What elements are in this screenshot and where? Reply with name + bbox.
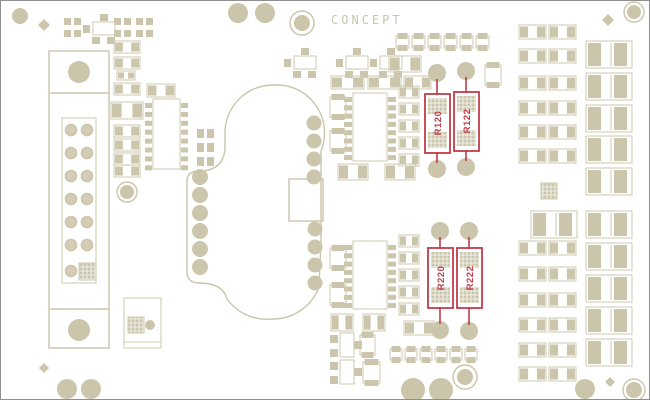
pad <box>520 243 528 254</box>
pad <box>614 43 627 66</box>
pad <box>614 341 627 364</box>
pad <box>131 43 139 52</box>
pcb-layout-canvas: CONCEPT R120 R122 R220 <box>1 1 649 399</box>
pad <box>567 320 575 331</box>
fiducial-pad <box>294 15 310 31</box>
pad <box>332 148 345 154</box>
pad <box>400 139 406 148</box>
pad <box>567 103 575 114</box>
pad <box>588 107 601 130</box>
pad <box>550 345 558 356</box>
ic-pin <box>388 287 396 292</box>
pad <box>146 18 153 25</box>
mounting-pad <box>12 8 28 24</box>
pad <box>207 143 214 152</box>
component-ref-label: R120 <box>433 111 444 136</box>
pad <box>588 138 601 161</box>
pad <box>336 59 343 67</box>
module-outline <box>187 85 325 319</box>
pad <box>412 105 418 114</box>
pad <box>550 27 558 38</box>
pad <box>567 78 575 89</box>
ic-pin <box>145 139 152 144</box>
pad <box>308 71 316 78</box>
ic-pin <box>344 114 352 119</box>
pad <box>550 151 558 162</box>
ic-pin <box>181 103 188 108</box>
pad <box>588 43 601 66</box>
pad <box>478 45 488 51</box>
connector-pin <box>66 266 77 277</box>
pad <box>452 346 461 352</box>
ic-pin <box>388 155 396 160</box>
pad <box>115 141 123 150</box>
corner-diamond <box>38 19 50 31</box>
pad <box>588 277 601 300</box>
pad <box>550 51 558 62</box>
pad <box>614 170 627 193</box>
ic-pin <box>344 105 352 110</box>
pad <box>537 78 545 89</box>
pad <box>124 30 131 37</box>
connector-pin <box>66 240 77 251</box>
pad <box>400 271 406 280</box>
pad <box>446 33 456 39</box>
mounting-pad <box>255 3 275 23</box>
pad <box>386 166 395 179</box>
connector-pin <box>82 217 93 228</box>
pad <box>301 48 309 55</box>
pad <box>166 86 174 96</box>
smd-pad <box>431 252 450 268</box>
pad <box>588 245 601 268</box>
pad <box>550 295 558 306</box>
ic-pin <box>344 139 352 144</box>
ic-pin <box>181 165 188 170</box>
pad <box>132 104 142 118</box>
pad <box>614 309 627 332</box>
pad <box>430 33 440 39</box>
module-pad <box>307 134 322 149</box>
pad <box>390 58 400 71</box>
pad <box>379 71 387 78</box>
module-pad <box>308 222 323 237</box>
pad <box>414 33 424 39</box>
pad <box>537 103 545 114</box>
pad <box>136 30 143 37</box>
sot23-body <box>294 56 316 69</box>
ic-pin <box>145 103 152 108</box>
pad <box>128 73 134 79</box>
ic-pin <box>344 270 352 275</box>
fiducial-pad <box>627 5 641 19</box>
pad <box>64 18 71 25</box>
pad <box>550 369 558 380</box>
pad <box>412 288 418 297</box>
pad <box>353 48 361 55</box>
ic-pin <box>344 253 352 258</box>
pad <box>478 33 488 39</box>
pad <box>567 151 575 162</box>
ic-pin <box>145 156 152 161</box>
pad <box>567 243 575 254</box>
pad <box>74 30 81 37</box>
pad <box>412 271 418 280</box>
component-ref-label: R220 <box>436 266 447 291</box>
module-pad <box>307 152 322 167</box>
pad <box>537 51 545 62</box>
sot23-body <box>340 333 354 357</box>
pad <box>422 357 431 363</box>
pad <box>345 316 352 330</box>
pad <box>369 78 379 88</box>
ic-pin <box>388 97 396 102</box>
pad <box>400 105 406 114</box>
pad <box>520 103 528 114</box>
mounting-pad <box>429 378 453 399</box>
module-pad <box>192 241 208 257</box>
pad <box>520 269 528 280</box>
connector-pin <box>66 148 77 159</box>
pad <box>377 316 384 330</box>
pad <box>520 320 528 331</box>
ic-pin <box>388 278 396 283</box>
pad <box>332 245 345 251</box>
pad <box>353 78 363 88</box>
fiducial-pad <box>626 382 642 398</box>
dsub-connector-outline <box>49 51 109 348</box>
pad <box>430 45 440 51</box>
pad <box>550 103 558 114</box>
pad <box>446 45 456 51</box>
pad <box>332 114 345 120</box>
corner-diamond <box>602 14 614 26</box>
pad <box>412 254 418 263</box>
module-pad <box>307 170 322 185</box>
pad <box>115 85 123 94</box>
pad <box>332 265 345 271</box>
hatched-pad <box>128 317 144 333</box>
ic-pin <box>344 287 352 292</box>
pad <box>284 59 291 67</box>
ic-pin <box>388 295 396 300</box>
pad <box>520 78 528 89</box>
ic-pin <box>388 303 396 308</box>
pad <box>392 346 401 352</box>
ic-pin <box>344 262 352 267</box>
pad <box>462 33 472 39</box>
pad <box>365 359 379 365</box>
pad <box>567 369 575 380</box>
pad <box>400 254 406 263</box>
ic-pin <box>388 270 396 275</box>
mounting-pad <box>401 378 425 399</box>
ic-pin <box>344 295 352 300</box>
pad <box>520 27 528 38</box>
pad <box>115 167 123 176</box>
pad <box>400 122 406 131</box>
pad <box>124 18 131 25</box>
pad <box>410 58 420 71</box>
corner-diamond <box>605 377 615 387</box>
ic-pin <box>145 165 152 170</box>
ic-pin <box>344 303 352 308</box>
component-r222[interactable]: R222 <box>457 222 482 340</box>
ic-pin <box>181 121 188 126</box>
pad <box>467 357 476 363</box>
connector-pin <box>82 194 93 205</box>
ic-pin <box>344 97 352 102</box>
footprint-outline <box>363 362 380 383</box>
sot23-body <box>346 56 368 69</box>
watermark-text: CONCEPT <box>331 13 403 27</box>
module-pad <box>192 223 208 239</box>
pad <box>345 71 353 78</box>
pad-circle <box>145 320 155 330</box>
pad <box>197 129 204 138</box>
silkscreen-layer <box>12 2 645 399</box>
pad <box>614 245 627 268</box>
pad <box>131 167 139 176</box>
ic-body <box>353 241 387 309</box>
pad <box>131 141 139 150</box>
pad <box>437 357 446 363</box>
pad <box>74 18 81 25</box>
pad <box>533 213 546 236</box>
pad <box>146 30 153 37</box>
pad <box>131 155 139 164</box>
pad <box>487 82 500 88</box>
connector-pin <box>82 148 93 159</box>
pad <box>330 362 338 370</box>
pad <box>131 127 139 136</box>
hatched-pad <box>541 183 557 199</box>
mounting-pad <box>57 379 77 399</box>
pad <box>614 75 627 98</box>
pad <box>437 346 446 352</box>
pad <box>550 243 558 254</box>
pad <box>414 45 424 51</box>
mounting-pad <box>81 379 101 399</box>
connector-pin <box>66 194 77 205</box>
pad <box>131 85 139 94</box>
pad <box>362 332 374 338</box>
pad <box>614 138 627 161</box>
pad <box>332 316 339 330</box>
pad <box>118 73 124 79</box>
fiducial-pad <box>457 369 473 385</box>
pad <box>354 341 362 349</box>
component-r122[interactable]: R122 <box>454 62 479 176</box>
ic-pin <box>388 245 396 250</box>
pad <box>567 127 575 138</box>
mounting-pad <box>228 3 248 23</box>
pad <box>405 323 414 334</box>
pad <box>537 27 545 38</box>
pad <box>115 43 123 52</box>
pad <box>412 139 418 148</box>
pad <box>400 305 406 314</box>
ic-pin <box>388 262 396 267</box>
pad <box>567 27 575 38</box>
pad <box>407 346 416 352</box>
pad <box>588 341 601 364</box>
connector-boss <box>68 61 90 83</box>
module-pad <box>192 259 208 275</box>
ic-body <box>153 99 180 169</box>
pad <box>354 368 362 376</box>
pad <box>452 357 461 363</box>
pad <box>100 14 108 21</box>
ic-pin <box>181 130 188 135</box>
pad <box>412 237 418 246</box>
module-pad <box>192 205 208 221</box>
ic-pin <box>388 122 396 127</box>
pad <box>400 88 406 97</box>
pad <box>197 157 204 166</box>
pad <box>487 62 500 68</box>
pad <box>115 127 123 136</box>
corner-diamond <box>39 363 49 373</box>
pad <box>115 59 123 68</box>
pad <box>412 88 418 97</box>
pad <box>330 335 338 343</box>
fiducial-pad <box>120 185 134 199</box>
ic-pin <box>344 155 352 160</box>
pad <box>462 45 472 51</box>
module-pad <box>192 187 208 203</box>
pad <box>400 237 406 246</box>
ic-pin <box>181 156 188 161</box>
pad <box>520 295 528 306</box>
ic-body <box>353 93 387 161</box>
pad <box>537 269 545 280</box>
ic-pin <box>388 139 396 144</box>
connector-pin <box>82 171 93 182</box>
pad <box>422 78 430 88</box>
connector-pin <box>66 171 77 182</box>
pad <box>550 320 558 331</box>
pad <box>412 305 418 314</box>
pad <box>520 345 528 356</box>
pad <box>400 156 406 165</box>
pad <box>148 86 156 96</box>
pad <box>588 309 601 332</box>
pad <box>332 282 345 288</box>
pad <box>520 369 528 380</box>
pad <box>550 127 558 138</box>
pad <box>332 128 345 134</box>
pad <box>614 277 627 300</box>
pad <box>370 59 377 67</box>
module-pad <box>307 116 322 131</box>
pad <box>567 295 575 306</box>
pad <box>330 376 338 384</box>
ic-pin <box>388 105 396 110</box>
pad <box>136 18 143 25</box>
mounting-pad <box>575 379 595 399</box>
pad <box>520 51 528 62</box>
pad <box>392 357 401 363</box>
pad <box>83 25 90 33</box>
pad <box>364 316 371 330</box>
connector-pin <box>66 125 77 136</box>
pad <box>412 122 418 131</box>
pad <box>467 346 476 352</box>
sot23-body <box>93 22 115 35</box>
pad <box>537 369 545 380</box>
pad <box>64 30 71 37</box>
ic-pin <box>388 114 396 119</box>
connector-pin <box>82 240 93 251</box>
module-pad <box>308 276 323 291</box>
pad <box>197 143 204 152</box>
pad <box>207 129 214 138</box>
pad <box>537 295 545 306</box>
pad <box>330 349 338 357</box>
pad <box>537 320 545 331</box>
pad <box>407 357 416 363</box>
ic-pin <box>388 130 396 135</box>
pad <box>537 127 545 138</box>
pad <box>115 155 123 164</box>
connector-boss <box>68 319 90 341</box>
pcb-assembly-drawing: CONCEPT R120 R122 R220 <box>0 0 650 400</box>
ic-pin <box>145 121 152 126</box>
pad <box>365 380 379 386</box>
ic-pin <box>388 253 396 258</box>
pad <box>362 352 374 358</box>
pad <box>422 346 431 352</box>
pad <box>293 71 301 78</box>
pad <box>614 213 627 236</box>
pad <box>398 33 408 39</box>
pad <box>588 170 601 193</box>
pad <box>550 269 558 280</box>
ic-pin <box>145 112 152 117</box>
pad <box>537 345 545 356</box>
pad <box>614 107 627 130</box>
pad <box>358 166 367 179</box>
pad <box>588 75 601 98</box>
pad <box>537 151 545 162</box>
ic-pin <box>145 148 152 153</box>
component-ref-label: R122 <box>462 109 473 134</box>
pad <box>567 269 575 280</box>
pad <box>559 213 572 236</box>
pad <box>112 104 122 118</box>
pad <box>332 302 345 308</box>
sot23-body <box>340 360 354 384</box>
ic-pin <box>181 148 188 153</box>
pad <box>520 151 528 162</box>
pad <box>567 345 575 356</box>
ic-pin <box>344 122 352 127</box>
ic-pin <box>181 139 188 144</box>
pad <box>207 157 214 166</box>
pad <box>567 51 575 62</box>
pad <box>332 94 345 100</box>
hatched-pad <box>79 263 96 280</box>
ic-pin <box>344 278 352 283</box>
pad <box>400 288 406 297</box>
ic-pin <box>145 130 152 135</box>
pad <box>520 127 528 138</box>
pad <box>332 78 342 88</box>
pad <box>405 166 414 179</box>
pad <box>412 156 418 165</box>
connector-pin <box>82 125 93 136</box>
